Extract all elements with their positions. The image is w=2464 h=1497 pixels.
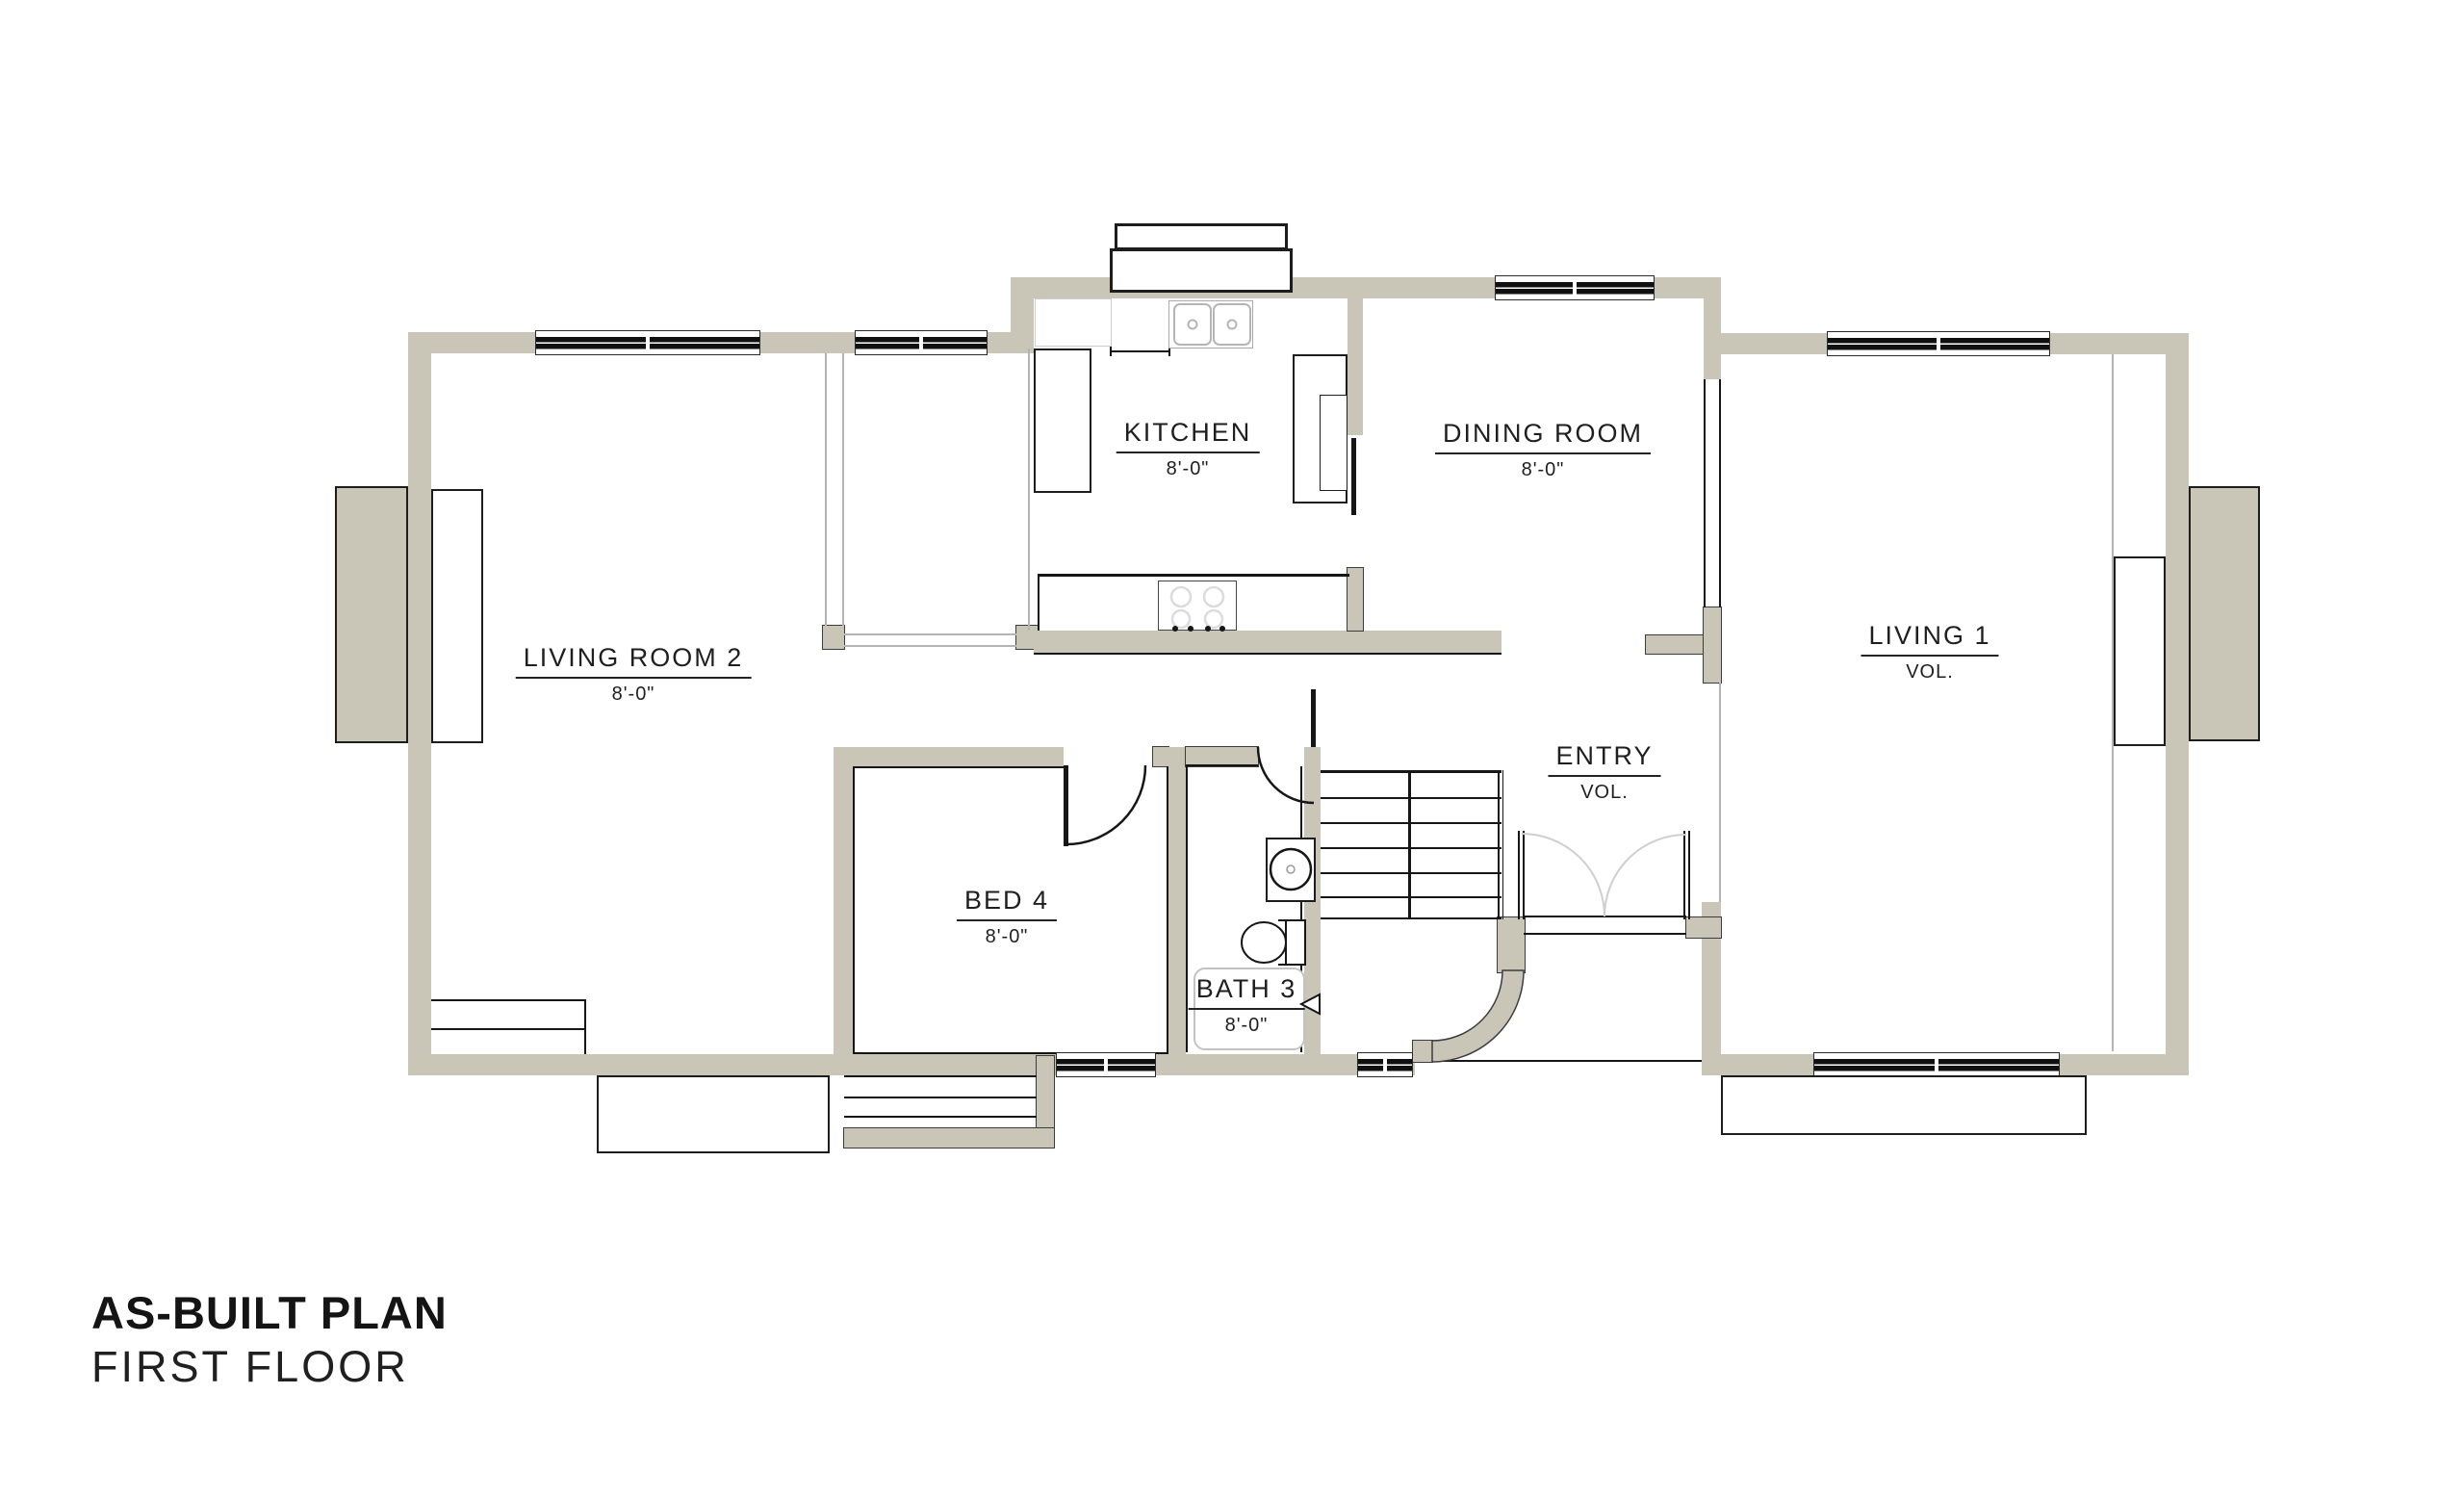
porch-curved-wall: [1432, 970, 1524, 1062]
vanity-sink: [1270, 849, 1311, 890]
room-name: ENTRY: [1548, 741, 1660, 777]
floor-plan: LIVING ROOM 2 8'-0" KITCHEN 8'-0" DINING…: [0, 0, 2464, 1497]
cooktop-knob: [1219, 626, 1225, 632]
room-name: BATH 3: [1189, 974, 1305, 1010]
fixtures-layer: [0, 0, 2464, 1497]
room-dim: 8'-0": [1167, 458, 1210, 480]
room-dim: VOL.: [1580, 782, 1629, 804]
cooktop-burner: [1204, 587, 1223, 607]
kitchen-sink-basin: [1214, 304, 1250, 345]
cooktop-burner: [1205, 610, 1222, 628]
room-label-entry: ENTRY VOL.: [1548, 741, 1660, 804]
toilet-tank: [1286, 920, 1305, 965]
cooktop-knob: [1172, 626, 1178, 632]
room-label-living-1: LIVING 1 VOL.: [1861, 621, 1998, 684]
room-dim: 8'-0": [612, 684, 655, 706]
cooktop-burner: [1172, 610, 1190, 628]
room-dim: VOL.: [1906, 661, 1954, 684]
title-block: AS-BUILT PLAN FIRST FLOOR: [91, 1286, 448, 1394]
cooktop-knob: [1205, 626, 1211, 632]
bath-door-arc: [1258, 747, 1314, 803]
room-label-dining-room: DINING ROOM 8'-0": [1435, 419, 1651, 481]
room-name: KITCHEN: [1116, 418, 1260, 453]
toilet-bowl: [1242, 922, 1286, 963]
room-name: DINING ROOM: [1435, 419, 1651, 454]
entry-door-arc-left: [1522, 834, 1604, 916]
bed4-door-arc: [1066, 765, 1145, 844]
room-dim: 8'-0": [1522, 459, 1565, 481]
room-label-bed-4: BED 4 8'-0": [957, 886, 1057, 948]
room-label-bath-3: BATH 3 8'-0": [1189, 974, 1305, 1037]
room-label-living-room-2: LIVING ROOM 2 8'-0": [516, 643, 752, 706]
room-name: LIVING 1: [1861, 621, 1998, 657]
room-dim: 8'-0": [1225, 1015, 1269, 1037]
plan-subtitle: FIRST FLOOR: [91, 1340, 448, 1394]
cooktop-knob: [1188, 626, 1193, 632]
room-label-kitchen: KITCHEN 8'-0": [1116, 418, 1260, 480]
room-name: BED 4: [957, 886, 1057, 921]
cooktop-burner: [1171, 587, 1191, 607]
kitchen-sink-basin: [1174, 304, 1211, 345]
entry-door-arc-right: [1604, 835, 1686, 916]
room-dim: 8'-0": [986, 926, 1029, 948]
plan-title: AS-BUILT PLAN: [91, 1286, 448, 1340]
screenshot-canvas: LIVING ROOM 2 8'-0" KITCHEN 8'-0" DINING…: [0, 0, 2464, 1497]
room-name: LIVING ROOM 2: [516, 643, 752, 679]
